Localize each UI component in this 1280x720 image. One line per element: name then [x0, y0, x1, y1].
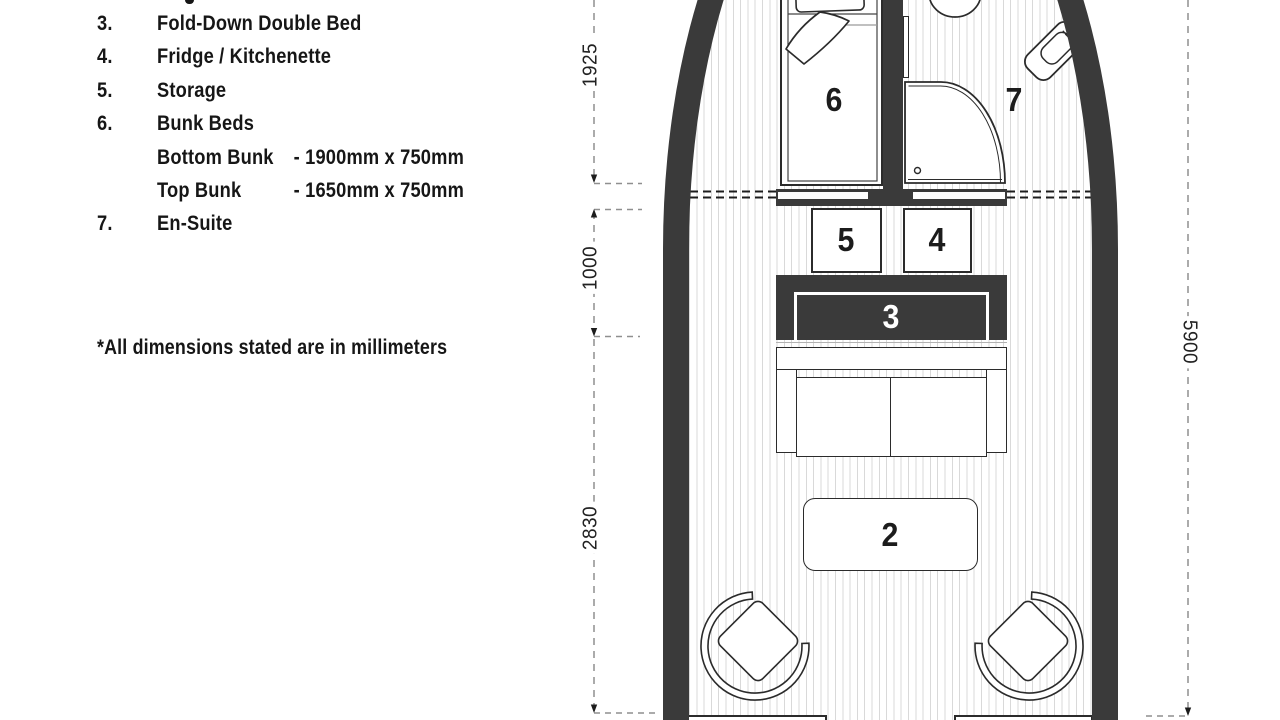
- legend-item-number: 6.: [97, 110, 113, 137]
- legend-item-number: 7.: [97, 210, 113, 237]
- dimension-label-2830: 2830: [580, 502, 603, 554]
- dimension-label-1925: 1925: [580, 39, 603, 91]
- dimensions-note: *All dimensions stated are in millimeter…: [97, 334, 447, 361]
- legend-item-detail: - 1650mm x 750mm: [294, 177, 464, 204]
- cut-off-text-fragment: [185, 0, 194, 4]
- legend-item-label: Bottom Bunk: [157, 144, 274, 171]
- dimension-label-1000: 1000: [580, 242, 603, 294]
- legend-item-label: Top Bunk: [157, 177, 241, 204]
- legend-item-number: 5.: [97, 77, 113, 104]
- legend-item-label: Storage: [157, 77, 226, 104]
- legend-item-label: Fridge / Kitchenette: [157, 43, 331, 70]
- pod-outer-wall: [663, 0, 1118, 720]
- legend-item-number: 3.: [97, 10, 113, 37]
- legend-item-detail: - 1900mm x 750mm: [294, 144, 464, 171]
- legend-item-label: Fold-Down Double Bed: [157, 10, 361, 37]
- floorplan-page: 3. Fold-Down Double Bed 4. Fridge / Kitc…: [0, 0, 1280, 720]
- legend-item-number: 4.: [97, 43, 113, 70]
- dimension-label-5900: 5900: [1178, 316, 1201, 368]
- legend-item-label: Bunk Beds: [157, 110, 254, 137]
- legend-item-label: En-Suite: [157, 210, 232, 237]
